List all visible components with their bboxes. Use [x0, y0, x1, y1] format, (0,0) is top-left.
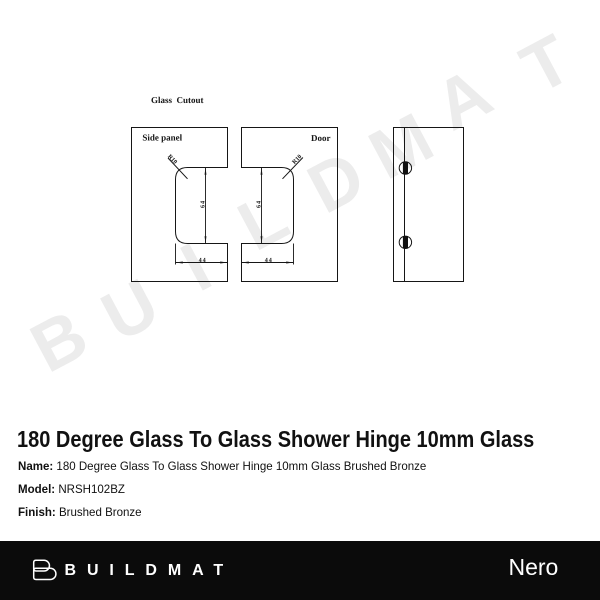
svg-text:44: 44	[199, 257, 207, 264]
svg-text:Door: Door	[311, 133, 331, 143]
svg-text:R10: R10	[291, 153, 303, 166]
svg-text:Glass Cutout: Glass Cutout	[151, 95, 204, 105]
svg-text:44: 44	[265, 257, 273, 264]
svg-text:64: 64	[255, 200, 262, 208]
svg-text:R10: R10	[166, 153, 178, 166]
svg-text:64: 64	[199, 200, 206, 208]
svg-text:Side panel: Side panel	[142, 133, 182, 143]
